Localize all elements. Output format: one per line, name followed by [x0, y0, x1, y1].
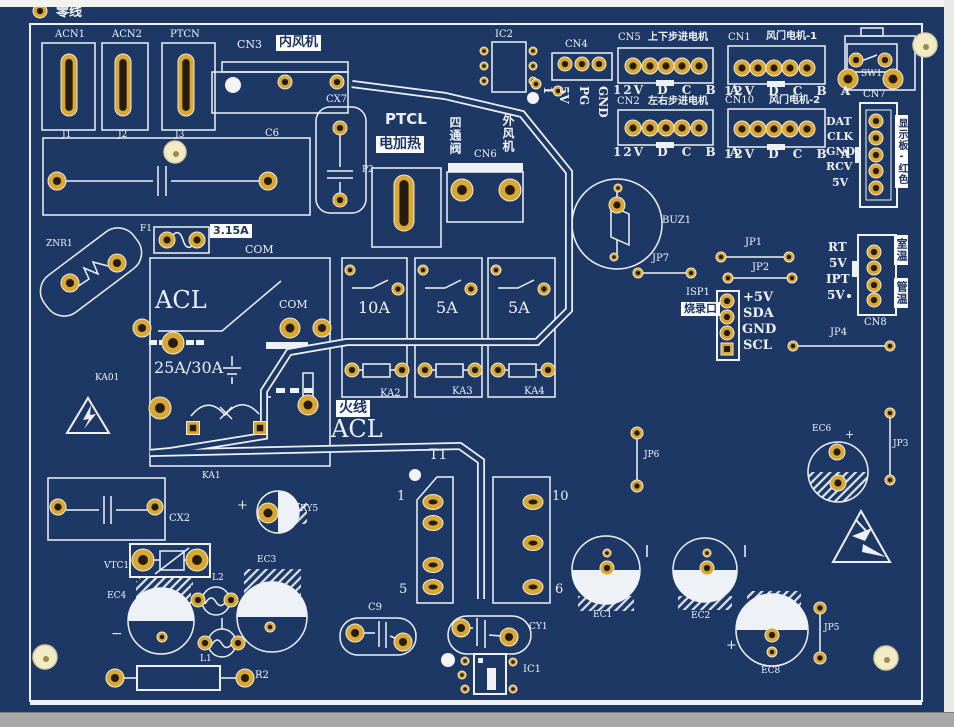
label-passives-l2: L2	[212, 574, 224, 583]
pad-hole	[705, 551, 709, 555]
slot-hole	[528, 500, 537, 505]
pad-hole	[719, 255, 724, 260]
label-motors-1-tag: 左右步进电机	[648, 97, 708, 107]
slot-hole	[428, 585, 437, 590]
label-relays-0-ref: KA2	[380, 389, 401, 399]
pad-hole	[155, 403, 165, 413]
pad-hole	[421, 268, 426, 273]
pad-hole	[531, 64, 535, 68]
pad-hole	[395, 286, 400, 291]
label-power-live_acl: ACL	[331, 417, 383, 441]
pad-hole	[399, 367, 405, 373]
pad-hole	[844, 75, 853, 84]
pad-hole	[636, 271, 641, 276]
pad-hole	[163, 236, 170, 243]
label-relays-1-ref: KA3	[452, 387, 473, 397]
slot-hole	[428, 563, 437, 568]
label-power-com_top: COM	[245, 244, 274, 255]
label-motors-2-tag: 风门电机-1	[766, 32, 817, 42]
pad-hole	[264, 177, 272, 185]
label-tl-cx7: CX7	[326, 95, 347, 105]
cy1-capacitor-symbol	[469, 618, 501, 648]
pad-hole	[463, 659, 467, 663]
label-sensor-pins-3: 5V	[827, 289, 845, 301]
label-sensor-ref: CN8	[864, 318, 887, 328]
pad-hole	[634, 483, 639, 488]
pad-hole	[241, 674, 249, 682]
slot-hole	[428, 521, 437, 526]
window-chrome-right[interactable]	[944, 0, 954, 712]
label-passives-ic1: IC1	[523, 665, 541, 675]
pad-hole	[511, 660, 515, 664]
label-sensor-pins-1: 5V	[829, 257, 847, 269]
pad-hole	[803, 64, 810, 71]
pad-hole	[770, 64, 777, 71]
label-tl-p2: P2	[362, 166, 374, 175]
label-cn6-ref: CN6	[474, 150, 497, 160]
pad-hole	[871, 249, 877, 255]
label-ic2-ref: IC2	[495, 30, 513, 40]
label-motors-3-tag: 风门电机-2	[769, 96, 820, 106]
label-tl-terminals-0-ref: ACN1	[55, 30, 85, 40]
pad-hole	[873, 168, 879, 174]
pad-hole	[534, 82, 539, 87]
label-sensor-pins-2: IPT	[826, 273, 850, 285]
label-power-com_mid: COM	[279, 299, 308, 310]
pad-hole	[678, 124, 685, 131]
pad-hole	[193, 236, 200, 243]
label-relays-2-amp: 5A	[508, 300, 530, 316]
label-jumpers-jp3: JP3	[893, 440, 908, 449]
label-cn7-pins-2: GND	[826, 146, 855, 157]
pad-hole	[786, 125, 793, 132]
label-isp-pins-1: SDA	[743, 307, 774, 320]
pad-hole	[399, 638, 407, 646]
label-tl-cn3-tag: 内风机	[276, 35, 321, 51]
cx7-capacitor-symbol	[327, 135, 353, 194]
label-transformer-p5: 5	[399, 583, 407, 596]
label-passives-ec1: EC1	[593, 611, 612, 620]
label-motors-1-pins: 12V D C B A	[613, 146, 741, 158]
pad-hole	[817, 655, 822, 660]
pad-hole	[634, 430, 639, 435]
pad-hole	[889, 75, 898, 84]
esd-warning-icon	[833, 511, 890, 562]
pcb-artwork	[0, 0, 954, 727]
pad-hole	[596, 61, 602, 67]
label-passives-ec6: EC6	[812, 425, 831, 434]
varistor-symbol	[77, 262, 108, 287]
pad-hole	[834, 479, 841, 486]
label-cn7-pins-3: RCV	[826, 161, 852, 172]
pad-hole	[817, 605, 822, 610]
label-power-znr: ZNR1	[46, 240, 73, 249]
pad-hole	[545, 367, 551, 373]
pad-hole	[754, 125, 761, 132]
silkscreen-dot	[409, 469, 421, 481]
pad-hole	[646, 62, 653, 69]
pad-hole	[457, 185, 467, 195]
label-cn7-pins-1: CLK	[827, 131, 853, 142]
label-passives-cx2: CX2	[169, 514, 190, 524]
pad-hole	[873, 135, 879, 141]
label-motors-0-ref: CN5	[618, 33, 641, 43]
label-cn7-pins-0: DAT	[826, 116, 852, 127]
label-marks-minus: −	[111, 627, 123, 641]
label-tl-c6: C6	[265, 129, 279, 139]
window-chrome-top	[0, 0, 954, 7]
pad-hole	[695, 62, 702, 69]
pad-hole	[348, 268, 353, 273]
label-buzzer-ref: BUZ1	[662, 216, 691, 226]
pad-hole	[337, 197, 343, 203]
znr1-outline	[32, 220, 149, 324]
pad-hole	[495, 367, 501, 373]
pad-hole	[888, 478, 893, 483]
label-isp-pins-0: +5V	[743, 291, 773, 304]
label-isp-pins-2: GND	[742, 323, 776, 336]
r2-outline	[137, 666, 220, 690]
pad-hole	[790, 276, 795, 281]
label-passives-cy1: CY1	[529, 623, 548, 632]
label-relays-1-amp: 5A	[436, 300, 458, 316]
pad-hole	[482, 79, 486, 83]
pad-hole	[505, 633, 513, 641]
pad-hole	[629, 62, 636, 69]
hole-center	[173, 151, 179, 157]
label-tl-neutral: 零线	[56, 6, 82, 19]
label-tl-terminals-2-pin: J3	[175, 131, 184, 140]
pad-hole	[724, 346, 730, 352]
label-cn4-ref: CN4	[565, 40, 588, 50]
pad-hole	[616, 186, 620, 190]
pad-hole	[871, 265, 877, 271]
label-transformer-p10: 10	[552, 490, 569, 503]
pad-hole	[786, 64, 793, 71]
pad-hole	[704, 565, 710, 571]
label-passives-ec2: EC2	[691, 612, 710, 621]
pad-hole	[853, 57, 859, 63]
label-motors-1-ref: CN2	[617, 97, 640, 107]
pad-hole	[482, 64, 486, 68]
pad-hole	[531, 49, 535, 53]
pad-hole	[351, 629, 359, 637]
label-relays-0-amp: 10A	[358, 300, 390, 316]
label-tl-cn3-ref: CN3	[237, 39, 262, 50]
label-cn4-pins-0: 1	[542, 86, 554, 94]
label-tl-terminals-1-ref: ACN2	[112, 30, 142, 40]
pad-hole	[724, 298, 730, 304]
label-heater-tag: 电加热	[376, 136, 424, 153]
pad-hole	[286, 324, 295, 333]
label-cn4-pins-3: GND	[597, 86, 609, 118]
label-motors-0-tag: 上下步进电机	[648, 33, 708, 43]
pad-hole	[511, 687, 515, 691]
label-passives-ec4: EC4	[107, 592, 126, 601]
pad-hole	[66, 279, 74, 287]
label-sensor-tag_pipe: 管温	[894, 278, 908, 308]
c6-capacitor-symbol	[66, 166, 259, 196]
pad-hole	[726, 276, 731, 281]
pad-hole	[833, 448, 840, 455]
label-marks-plus: +	[845, 429, 854, 440]
pad-hole	[472, 367, 478, 373]
label-power-fuse_rating: 3.15A	[210, 224, 252, 238]
slot-hole	[399, 180, 408, 226]
pad-hole	[791, 344, 796, 349]
pad-hole	[505, 185, 515, 195]
label-passives-ry5: RY5	[300, 505, 318, 514]
pad-hole	[235, 640, 241, 646]
pad-hole	[160, 635, 165, 640]
hole-center	[43, 656, 49, 662]
label-power-acl: ACL	[155, 288, 207, 312]
label-transformer-p6: 6	[555, 583, 563, 596]
label-motors-2-ref: CN1	[728, 33, 751, 43]
pad-hole	[463, 687, 467, 691]
pad-hole	[888, 344, 893, 349]
label-relays-2-ref: KA4	[524, 387, 545, 397]
pad-hole	[113, 259, 121, 267]
pad-hole	[754, 64, 761, 71]
label-power-ka1: KA1	[202, 472, 221, 481]
slot-hole	[428, 500, 437, 505]
label-jumpers-jp1: JP1	[745, 238, 762, 248]
label-motors-0-pins: 12V D C B A	[613, 84, 741, 96]
pad-hole	[304, 401, 313, 410]
label-jumpers-jp2: JP2	[752, 263, 769, 273]
l1-inductor-symbol	[211, 618, 233, 648]
silkscreen-dot	[441, 653, 455, 667]
pad-hole	[562, 61, 568, 67]
pad-hole	[738, 64, 745, 71]
pad-hole	[228, 597, 234, 603]
silkscreen-dot	[527, 92, 539, 104]
label-tl-terminals-0-pin: J1	[62, 131, 71, 140]
pad-hole	[349, 367, 355, 373]
hole-center	[884, 657, 890, 663]
pad-hole	[724, 314, 730, 320]
label-cn4-pins-2: PG	[578, 86, 590, 105]
pad-hole	[605, 551, 609, 555]
label-jumpers-jp5: JP5	[824, 624, 839, 633]
label-sensor-pins-0: RT	[828, 241, 847, 253]
pad-hole	[457, 624, 465, 632]
pad-hole	[882, 57, 888, 63]
label-cn7-ref: CN7	[863, 90, 886, 100]
label-jumpers-jp7: JP7	[652, 254, 669, 264]
label-passives-ec3: EC3	[257, 556, 276, 565]
cn3-outline	[222, 62, 348, 72]
pad-hole	[257, 425, 264, 432]
pad-hole	[541, 286, 546, 291]
pad-hole	[54, 503, 61, 510]
label-jumpers-jp4: JP4	[830, 328, 847, 338]
fat-traces	[150, 84, 569, 599]
label-tl-terminals-1-pin: J2	[118, 131, 127, 140]
label-cn6-valve_tag: 四通阀	[449, 116, 461, 155]
label-marks-plus: +	[726, 639, 737, 652]
pad-hole	[37, 8, 43, 14]
pad-hole	[738, 125, 745, 132]
pad-hole	[604, 565, 610, 571]
pad-hole	[468, 286, 473, 291]
label-passives-l1: L1	[200, 655, 212, 664]
high-voltage-icon	[67, 398, 109, 433]
pad-hole	[268, 625, 273, 630]
label-sw1-ref: SW1	[861, 70, 882, 79]
pad-hole	[662, 62, 669, 69]
pad-hole	[53, 177, 61, 185]
pad-hole	[494, 268, 499, 273]
pad-hole	[678, 62, 685, 69]
pad-hole	[769, 632, 775, 638]
label-jumpers-jp6: JP6	[644, 451, 659, 460]
pcb-layout-view: 零线ACN1ACN2PTCNJ1J2J3CN3C6CX7P2PTCLCN6IC2…	[0, 0, 954, 727]
label-motors-3-ref: CN10	[725, 96, 754, 106]
label-isp-tag: 烧录口	[681, 302, 720, 316]
pad-hole	[422, 367, 428, 373]
pad-hole	[770, 125, 777, 132]
pad-hole	[888, 411, 893, 416]
label-passives-vtc1: VTC1	[104, 562, 129, 571]
ic2-outline	[492, 42, 526, 92]
pad-hole	[803, 125, 810, 132]
label-heater-ref: PTCL	[385, 112, 427, 127]
hole-center	[923, 44, 929, 50]
label-cn4-pins-1: 5V	[558, 86, 570, 104]
pad-hole	[337, 125, 343, 131]
slot-hole	[119, 59, 126, 111]
c9-capacitor-symbol	[363, 621, 397, 648]
label-isp-pins-3: SCL	[743, 339, 772, 352]
label-power-live_tag: 火线	[336, 400, 370, 417]
pad-hole	[724, 330, 730, 336]
pad-hole	[195, 597, 201, 603]
label-marks-plus: +	[237, 499, 248, 512]
label-transformer-p1: 1	[397, 490, 405, 503]
pad-hole	[613, 201, 620, 208]
silkscreen-dot	[847, 294, 851, 298]
pad-hole	[190, 425, 197, 432]
label-cn6-fan_tag: 外风机	[502, 114, 514, 153]
label-transformer-ref: T1	[429, 448, 447, 462]
pad-hole	[871, 297, 877, 303]
pad-hole	[264, 509, 273, 518]
pad-hole	[695, 124, 702, 131]
pad-hole	[579, 61, 585, 67]
pad-hole	[151, 503, 158, 510]
pad-hole	[138, 324, 146, 332]
pad-hole	[873, 185, 879, 191]
label-cn7-tag: 显示板-红色	[895, 115, 908, 188]
pad-hole	[770, 650, 775, 655]
label-cn7-pins-4: 5V	[832, 177, 848, 188]
pad-hole	[871, 282, 877, 288]
pad-hole	[202, 640, 208, 646]
pad-hole	[662, 124, 669, 131]
pad-hole	[873, 118, 879, 124]
pad-hole	[192, 555, 202, 565]
slot-hole	[182, 59, 189, 111]
slot-hole	[65, 59, 72, 111]
pad-hole	[612, 255, 616, 259]
pad-hole	[111, 674, 119, 682]
pad-hole	[482, 49, 486, 53]
silkscreen-dot	[225, 77, 241, 93]
pad-hole	[282, 79, 288, 85]
pad-hole	[168, 338, 178, 348]
pad-hole	[334, 79, 340, 85]
label-sensor-tag_room: 室温	[894, 235, 908, 265]
label-passives-r2: R2	[255, 671, 269, 681]
label-power-fuse_ref: F1	[140, 225, 152, 234]
pad-hole	[689, 271, 694, 276]
window-chrome-bottom	[0, 712, 954, 727]
pad-hole	[138, 555, 148, 565]
label-tl-terminals-2-ref: PTCN	[170, 30, 200, 40]
label-power-rating: 25A/30A	[154, 360, 223, 376]
pad-hole	[318, 324, 326, 332]
pad-hole	[460, 673, 464, 677]
pad-hole	[629, 124, 636, 131]
cx2-capacitor-symbol	[66, 496, 147, 524]
pad-hole	[646, 124, 653, 131]
pad-hole	[787, 255, 792, 260]
label-passives-c9: C9	[368, 603, 382, 613]
pad-hole	[873, 152, 879, 158]
slot-hole	[528, 585, 537, 590]
label-passives-ec8: EC8	[761, 667, 780, 676]
slot-hole	[528, 541, 537, 546]
label-isp-ref: ISP1	[686, 288, 710, 298]
label-power-ka01: KA01	[95, 374, 119, 383]
